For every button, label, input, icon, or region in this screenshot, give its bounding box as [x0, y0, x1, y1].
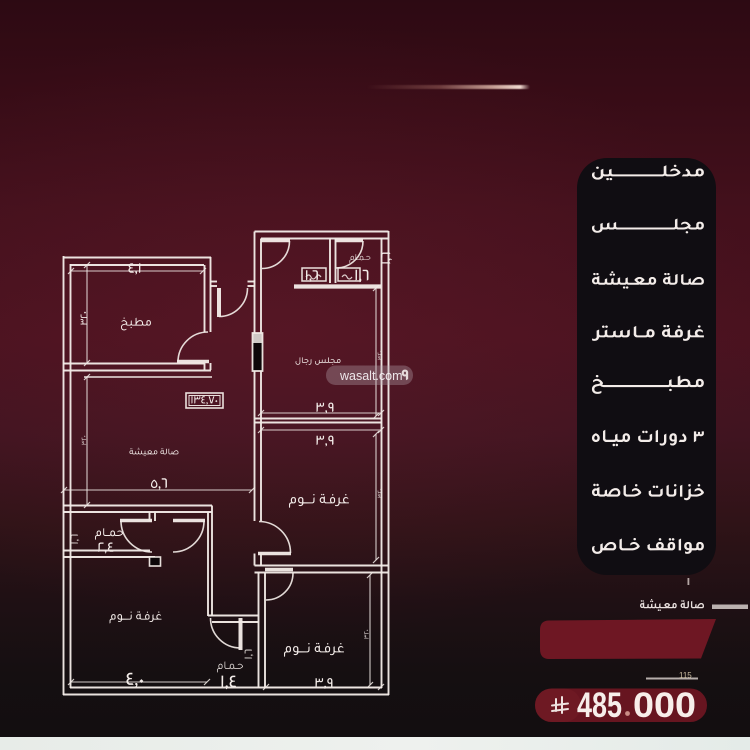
svg-text:000: 000: [633, 686, 696, 725]
svg-text:485: 485: [577, 686, 622, 725]
svg-text:wasalt.com: wasalt.com: [339, 369, 403, 383]
svg-text:115: 115: [679, 671, 692, 680]
